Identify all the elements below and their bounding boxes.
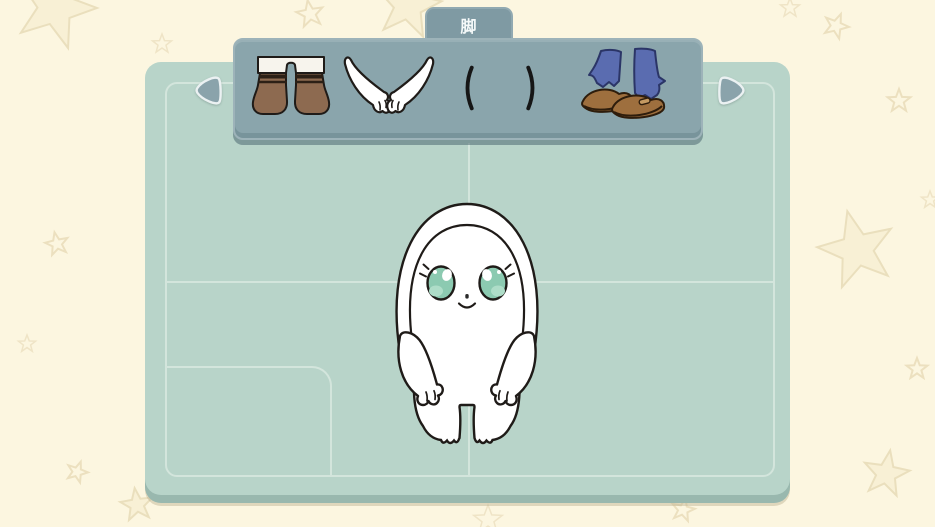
thin-legs-icon	[457, 62, 543, 114]
game-stage: 脚	[0, 0, 935, 527]
item-option-blue-socks-brown-shoes[interactable]	[573, 45, 681, 133]
next-page-button[interactable]	[717, 74, 747, 107]
right-arrow-icon	[717, 74, 747, 107]
item-selection-panel	[233, 38, 703, 140]
white-paws-icon	[339, 56, 439, 122]
board-bottom-left-region	[167, 366, 332, 477]
brown-boots-icon	[249, 51, 333, 127]
previous-page-button[interactable]	[193, 74, 223, 107]
item-option-brown-boots[interactable]	[249, 51, 333, 127]
left-arrow-icon	[193, 74, 223, 107]
character-preview	[383, 198, 553, 448]
blue-socks-brown-shoes-icon	[573, 45, 681, 133]
item-option-white-paws[interactable]	[339, 56, 439, 122]
tab-feet-label: 脚	[460, 13, 477, 37]
white-creature-character	[383, 198, 553, 448]
item-option-thin-legs[interactable]	[457, 62, 543, 114]
